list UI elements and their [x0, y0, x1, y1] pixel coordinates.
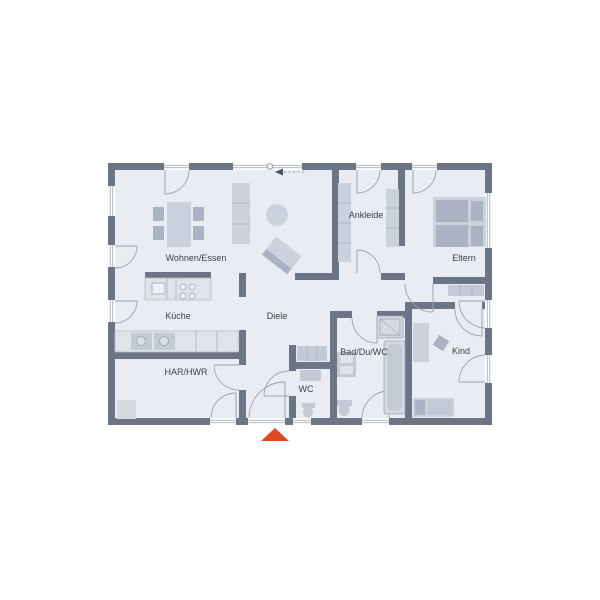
room-label-kind: Kind [452, 346, 470, 356]
kitchen-island [145, 272, 211, 300]
heater-unit [117, 400, 136, 419]
kitchen-counter [115, 331, 238, 352]
living-cabinet [232, 183, 250, 244]
hall-wardrobe [448, 285, 484, 296]
floor-plan-canvas: Wohnen/Essen Ankleide Eltern Küche Diele… [0, 0, 600, 600]
window-top-living [233, 163, 302, 170]
floor-plan: Wohnen/Essen Ankleide Eltern Küche Diele… [0, 0, 600, 600]
child-bed [413, 398, 454, 417]
window-pivot-icon [267, 164, 273, 170]
pillow [471, 201, 483, 221]
wc-washbasin [300, 370, 321, 381]
round-rug [266, 204, 288, 226]
wardrobe-right [386, 189, 399, 247]
room-label-eltern: Eltern [452, 253, 476, 263]
room-label-ankleide: Ankleide [349, 210, 384, 220]
room-label-wc: WC [299, 384, 314, 394]
room-label-diele: Diele [267, 311, 288, 321]
niche-cabinet [297, 346, 327, 361]
sink [152, 283, 165, 294]
pillow [415, 400, 425, 415]
window-left-living [108, 186, 115, 216]
window-right-parents [485, 193, 492, 248]
shower [377, 316, 403, 338]
room-label-kueche: Küche [165, 311, 191, 321]
wardrobe-left [338, 183, 351, 262]
child-desk [413, 323, 429, 362]
window-bottom-wc [293, 418, 311, 425]
room-label-bad: Bad/Du/WC [340, 347, 388, 357]
room-label-har: HAR/HWR [165, 367, 208, 377]
entrance-arrow-icon [261, 428, 289, 441]
pillow [471, 226, 483, 246]
double-bed [433, 197, 486, 247]
room-label-wohnen: Wohnen/Essen [166, 253, 227, 263]
